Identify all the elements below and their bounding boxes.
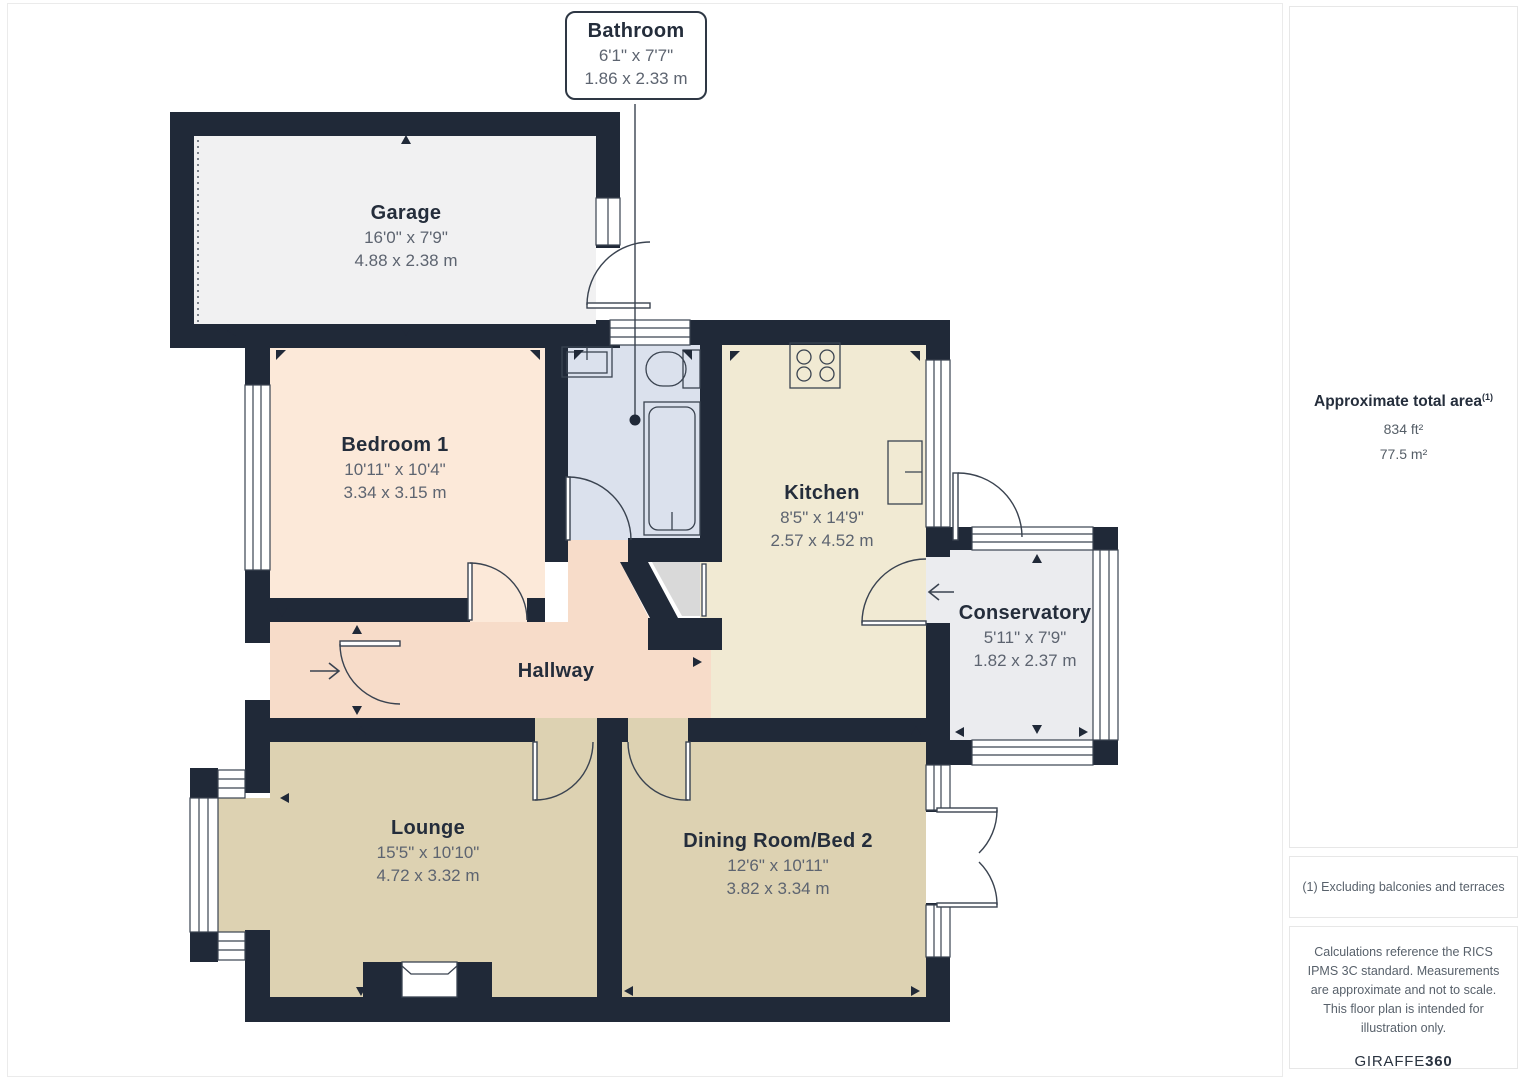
total-area-m: 77.5 m² (1380, 446, 1427, 462)
room-name: Kitchen (770, 480, 873, 506)
room-label-bedroom1: Bedroom 1 10'11" x 10'4" 3.34 x 3.15 m (341, 432, 448, 504)
room-label-hallway: Hallway (518, 658, 595, 684)
room-dim-metric: 4.72 x 3.32 m (376, 864, 479, 887)
french-door-gap (926, 812, 950, 903)
bathroom-floor (568, 345, 700, 540)
brand-name: GIRAFFE (1354, 1053, 1425, 1070)
room-label-lounge: Lounge 15'5" x 10'10" 4.72 x 3.32 m (376, 815, 479, 887)
room-dim-metric: 3.82 x 3.34 m (683, 877, 873, 900)
room-label-conservatory: Conservatory 5'11" x 7'9" 1.82 x 2.37 m (959, 600, 1092, 672)
room-name: Garage (354, 200, 457, 226)
cupboard-door (702, 564, 706, 616)
room-dim-imperial: 12'6" x 10'11" (683, 854, 873, 877)
disclaimer-panel: Calculations reference the RICS IPMS 3C … (1289, 926, 1518, 1069)
room-dim-imperial: 16'0" x 7'9" (354, 226, 457, 249)
total-area-label: Approximate total area (1314, 394, 1482, 411)
room-dim-imperial: 8'5" x 14'9" (770, 506, 873, 529)
total-area-panel: Approximate total area(1) 834 ft² 77.5 m… (1289, 6, 1518, 848)
bathroom-door-nook (568, 540, 628, 564)
room-dim-metric: 3.34 x 3.15 m (341, 481, 448, 504)
room-label-garage: Garage 16'0" x 7'9" 4.88 x 2.38 m (354, 200, 457, 272)
room-label-dining: Dining Room/Bed 2 12'6" x 10'11" 3.82 x … (683, 828, 873, 900)
room-dim-imperial: 5'11" x 7'9" (959, 626, 1092, 649)
room-dim-metric: 1.86 x 2.33 m (569, 67, 703, 90)
room-dim-imperial: 6'1" x 7'7" (569, 44, 703, 67)
total-area-title: Approximate total area(1) (1314, 392, 1493, 411)
room-dim-metric: 4.88 x 2.38 m (354, 249, 457, 272)
conservatory-threshold (926, 557, 950, 623)
room-name: Lounge (376, 815, 479, 841)
footnote-panel: (1) Excluding balconies and terraces (1289, 856, 1518, 918)
room-name: Bathroom (569, 18, 703, 44)
entry-gap (245, 643, 270, 700)
room-dim-imperial: 10'11" x 10'4" (341, 458, 448, 481)
total-area-ft: 834 ft² (1384, 421, 1424, 437)
fireplace (402, 962, 457, 997)
room-dim-metric: 2.57 x 4.52 m (770, 529, 873, 552)
lounge-door-nook (535, 718, 597, 742)
bay-floor (218, 798, 270, 932)
total-area-footnote-marker: (1) (1482, 392, 1493, 402)
room-name: Conservatory (959, 600, 1092, 626)
bathroom-callout: Bathroom 6'1" x 7'7" 1.86 x 2.33 m (565, 11, 707, 100)
room-name: Dining Room/Bed 2 (683, 828, 873, 854)
dining-door-nook (628, 718, 688, 742)
floorplan-page: Bathroom 6'1" x 7'7" 1.86 x 2.33 m Garag… (0, 0, 1527, 1080)
kitchen-window (926, 360, 950, 527)
giraffe360-logo: GIRAFFE360 (1302, 1053, 1505, 1070)
garage-window (596, 198, 620, 245)
footnote-text: (1) Excluding balconies and terraces (1302, 880, 1504, 894)
room-dim-metric: 1.82 x 2.37 m (959, 649, 1092, 672)
disclaimer-text: Calculations reference the RICS IPMS 3C … (1302, 943, 1505, 1038)
garage-side-door (587, 242, 650, 308)
bedroom-window (245, 385, 270, 570)
brand-number: 360 (1425, 1053, 1452, 1070)
room-name: Bedroom 1 (341, 432, 448, 458)
callout-anchor-dot (630, 415, 641, 426)
bedroom-door-nook (470, 598, 527, 622)
floorplan-canvas (0, 0, 1285, 1080)
room-label-kitchen: Kitchen 8'5" x 14'9" 2.57 x 4.52 m (770, 480, 873, 552)
room-name: Hallway (518, 658, 595, 684)
room-dim-imperial: 15'5" x 10'10" (376, 841, 479, 864)
bathroom-window (610, 320, 690, 345)
